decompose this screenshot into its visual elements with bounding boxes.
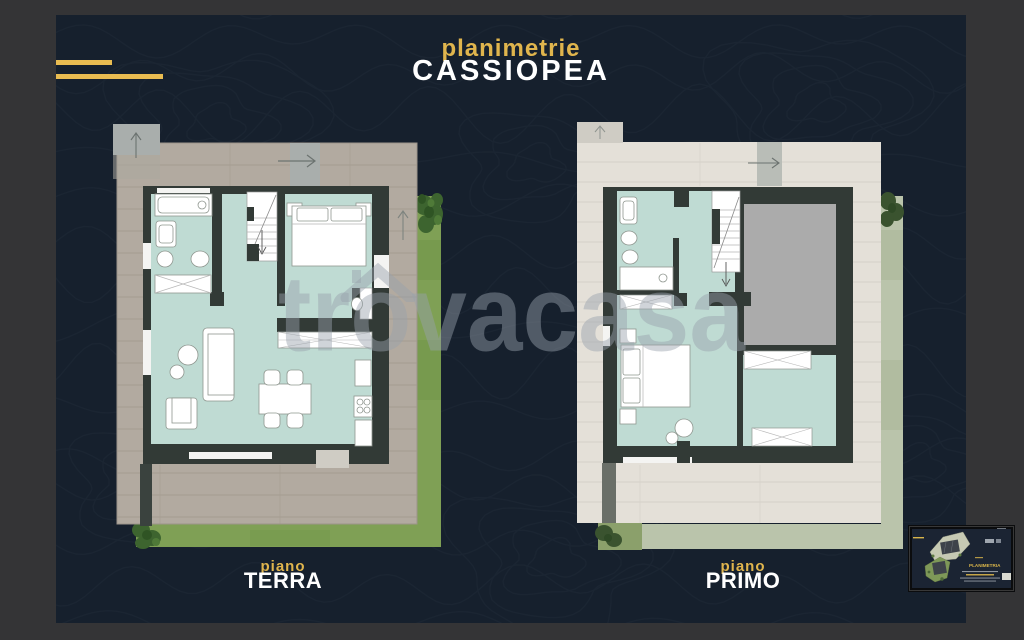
- svg-text:PLANIMETRIA: PLANIMETRIA: [969, 563, 1001, 568]
